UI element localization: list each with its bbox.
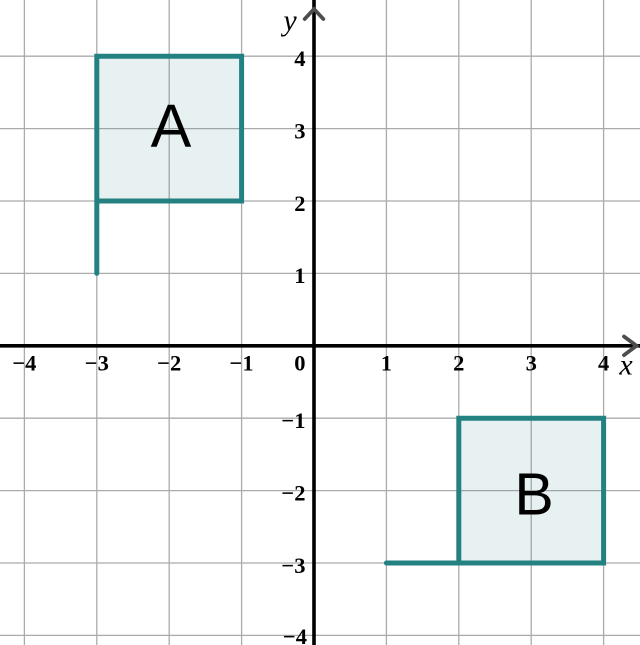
svg-text:2: 2	[453, 350, 464, 375]
svg-text:−4: −4	[283, 624, 307, 645]
svg-text:−1: −1	[230, 350, 254, 375]
svg-text:−2: −2	[281, 480, 305, 505]
svg-text:−2: −2	[157, 350, 181, 375]
svg-text:1: 1	[381, 350, 392, 375]
svg-text:4: 4	[294, 46, 305, 71]
svg-text:y: y	[280, 4, 297, 37]
svg-text:A: A	[151, 92, 192, 160]
svg-text:1: 1	[294, 263, 305, 288]
svg-text:B: B	[514, 462, 553, 528]
svg-text:−3: −3	[281, 553, 305, 578]
svg-text:−1: −1	[281, 408, 305, 433]
svg-text:3: 3	[526, 350, 537, 375]
svg-text:4: 4	[598, 350, 609, 375]
svg-text:2: 2	[294, 191, 305, 216]
svg-text:x: x	[618, 349, 633, 382]
svg-text:3: 3	[294, 118, 305, 143]
svg-text:−4: −4	[12, 350, 36, 375]
svg-text:−3: −3	[85, 350, 109, 375]
svg-text:0: 0	[294, 350, 305, 375]
